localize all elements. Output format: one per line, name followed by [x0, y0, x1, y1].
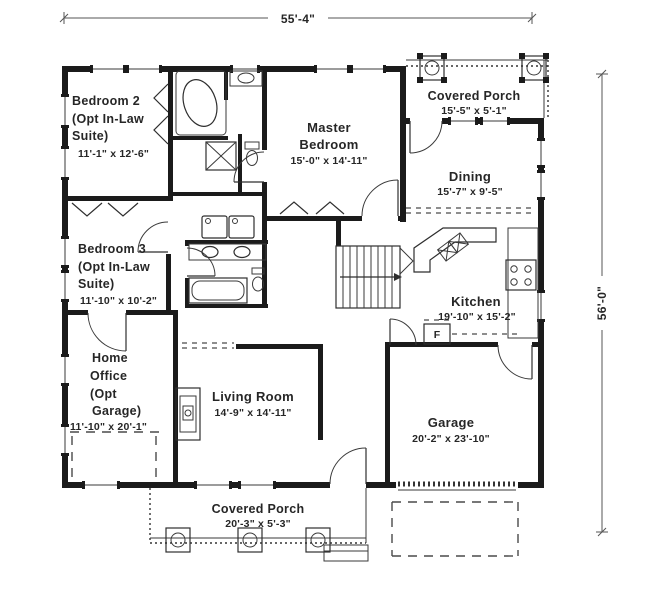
bifold-door	[316, 202, 344, 214]
svg-text:11'-1" x 12'-6": 11'-1" x 12'-6"	[78, 148, 149, 160]
refrigerator-label: F	[434, 329, 441, 341]
window	[61, 424, 69, 456]
kitchen-label: Kitchen 19'-10" x 15'-2"	[438, 294, 516, 323]
master-bedroom-label: Master Bedroom 15'-0" x 14'-11"	[290, 120, 367, 167]
window	[314, 65, 350, 73]
wall-segment	[185, 240, 268, 244]
stair-landing	[400, 248, 413, 274]
svg-text:Suite): Suite)	[72, 129, 109, 143]
dimension-right: 56'-0"	[595, 70, 609, 536]
window	[82, 481, 120, 489]
wall-segment	[400, 66, 406, 222]
wall-segment	[185, 304, 268, 308]
door-swing	[88, 313, 126, 351]
covered-porch-bottom-label: Covered Porch 20'-3" x 5'-3"	[212, 502, 305, 530]
window	[61, 94, 69, 128]
svg-text:Living Room: Living Room	[212, 389, 294, 404]
hall-transition	[182, 343, 234, 348]
window	[238, 481, 276, 489]
fireplace	[176, 388, 200, 440]
sink	[202, 247, 218, 258]
toilet-tank	[245, 142, 259, 149]
range	[506, 260, 536, 290]
svg-text:Bedroom 2: Bedroom 2	[72, 94, 140, 108]
floor-plan-page: 55'-4" 56'-0"	[0, 0, 648, 590]
svg-text:11'-10" x 10'-2": 11'-10" x 10'-2"	[80, 295, 157, 307]
window	[61, 270, 69, 302]
window	[350, 65, 386, 73]
svg-text:Kitchen: Kitchen	[451, 294, 501, 309]
svg-text:Covered Porch: Covered Porch	[428, 89, 521, 103]
svg-text:Home: Home	[92, 351, 128, 365]
svg-text:(Opt: (Opt	[90, 387, 117, 401]
svg-text:19'-10" x 15'-2": 19'-10" x 15'-2"	[438, 311, 516, 323]
window	[480, 117, 510, 125]
room-labels: Bedroom 2 (Opt In-Law Suite) 11'-1" x 12…	[70, 89, 520, 530]
wall-segment	[173, 192, 266, 196]
window	[537, 170, 545, 200]
svg-text:Garage): Garage)	[92, 404, 141, 418]
toilet	[247, 151, 258, 166]
living-room-label: Living Room 14'-9" x 14'-11"	[212, 389, 294, 419]
svg-text:15'-7" x 9'-5": 15'-7" x 9'-5"	[437, 186, 503, 198]
overall-width-label: 55'-4"	[281, 12, 315, 26]
sink	[238, 73, 254, 83]
svg-text:20'-2" x 23'-10": 20'-2" x 23'-10"	[412, 433, 490, 445]
door-swing	[390, 319, 416, 345]
bifold-door	[280, 202, 308, 214]
bifold-door	[154, 116, 168, 144]
stair-direction-arrow	[394, 273, 402, 281]
window	[230, 65, 260, 73]
door-swing	[498, 345, 532, 379]
svg-text:(Opt In-Law: (Opt In-Law	[72, 112, 144, 126]
floor-plan: 55'-4" 56'-0"	[0, 0, 648, 590]
door-swing	[410, 121, 442, 153]
window	[61, 146, 69, 180]
wall-segment	[238, 134, 242, 196]
vanity-counter	[189, 244, 266, 260]
svg-text:Garage: Garage	[428, 415, 475, 430]
porch-column	[306, 528, 330, 552]
svg-text:Suite): Suite)	[78, 277, 115, 291]
svg-text:15'-5" x 5'-1": 15'-5" x 5'-1"	[441, 105, 507, 117]
window	[61, 354, 69, 386]
door-swing	[330, 448, 366, 484]
opt-garage-outline	[70, 432, 160, 478]
window	[90, 65, 126, 73]
svg-text:15'-0" x 14'-11": 15'-0" x 14'-11"	[290, 155, 367, 167]
window	[61, 236, 69, 268]
svg-text:11'-10" x 20'-1": 11'-10" x 20'-1"	[70, 421, 147, 433]
door-swing	[362, 180, 398, 216]
dining-label: Dining 15'-7" x 9'-5"	[437, 169, 503, 198]
window	[537, 138, 545, 168]
svg-text:14'-9" x 14'-11": 14'-9" x 14'-11"	[214, 407, 291, 419]
overall-height-label: 56'-0"	[595, 286, 609, 320]
covered-porch-top-label: Covered Porch 15'-5" x 5'-1"	[428, 89, 521, 117]
laundry-closet	[202, 216, 254, 238]
wall-segment	[318, 348, 323, 440]
wall-segment	[168, 66, 173, 198]
window	[194, 481, 232, 489]
garden-tub	[177, 75, 222, 131]
driveway-outline	[392, 502, 518, 556]
bedroom3-label: Bedroom 3 (Opt In-Law Suite) 11'-10" x 1…	[78, 242, 157, 307]
svg-text:Covered Porch: Covered Porch	[212, 502, 305, 516]
wall-segment	[62, 196, 173, 201]
hall-bath	[189, 244, 266, 303]
stairs	[336, 246, 413, 308]
kitchen-fixtures: F	[406, 208, 538, 344]
wall-segment	[336, 216, 341, 246]
home-office-label: Home Office (Opt Garage) 11'-10" x 20'-1…	[70, 351, 147, 433]
garage-label: Garage 20'-2" x 23'-10"	[412, 415, 490, 445]
wall-segment	[173, 136, 228, 140]
svg-text:Office: Office	[90, 369, 127, 383]
porch-column	[166, 528, 190, 552]
bifold-door	[72, 203, 102, 216]
wall-segment	[385, 342, 390, 488]
svg-text:Bedroom 3: Bedroom 3	[78, 242, 146, 256]
bifold-door	[108, 203, 138, 216]
window	[448, 117, 478, 125]
porch-step	[324, 545, 368, 561]
island-sink	[438, 233, 469, 261]
svg-text:Master: Master	[307, 120, 351, 135]
svg-text:Bedroom: Bedroom	[299, 137, 358, 152]
sink	[234, 247, 250, 258]
door-swing	[187, 248, 215, 276]
porch-column	[238, 528, 262, 552]
bedroom2-label: Bedroom 2 (Opt In-Law Suite) 11'-1" x 12…	[72, 94, 149, 160]
bifold-door	[154, 84, 168, 112]
wall-segment	[236, 344, 323, 349]
porch-column	[417, 53, 447, 83]
svg-text:(Opt In-Law: (Opt In-Law	[78, 260, 150, 274]
dimension-top: 55'-4"	[60, 12, 536, 26]
toilet	[253, 277, 264, 291]
master-bath	[176, 71, 262, 170]
svg-text:Dining: Dining	[449, 169, 491, 184]
svg-text:20'-3" x 5'-3": 20'-3" x 5'-3"	[225, 518, 291, 530]
window	[126, 65, 162, 73]
